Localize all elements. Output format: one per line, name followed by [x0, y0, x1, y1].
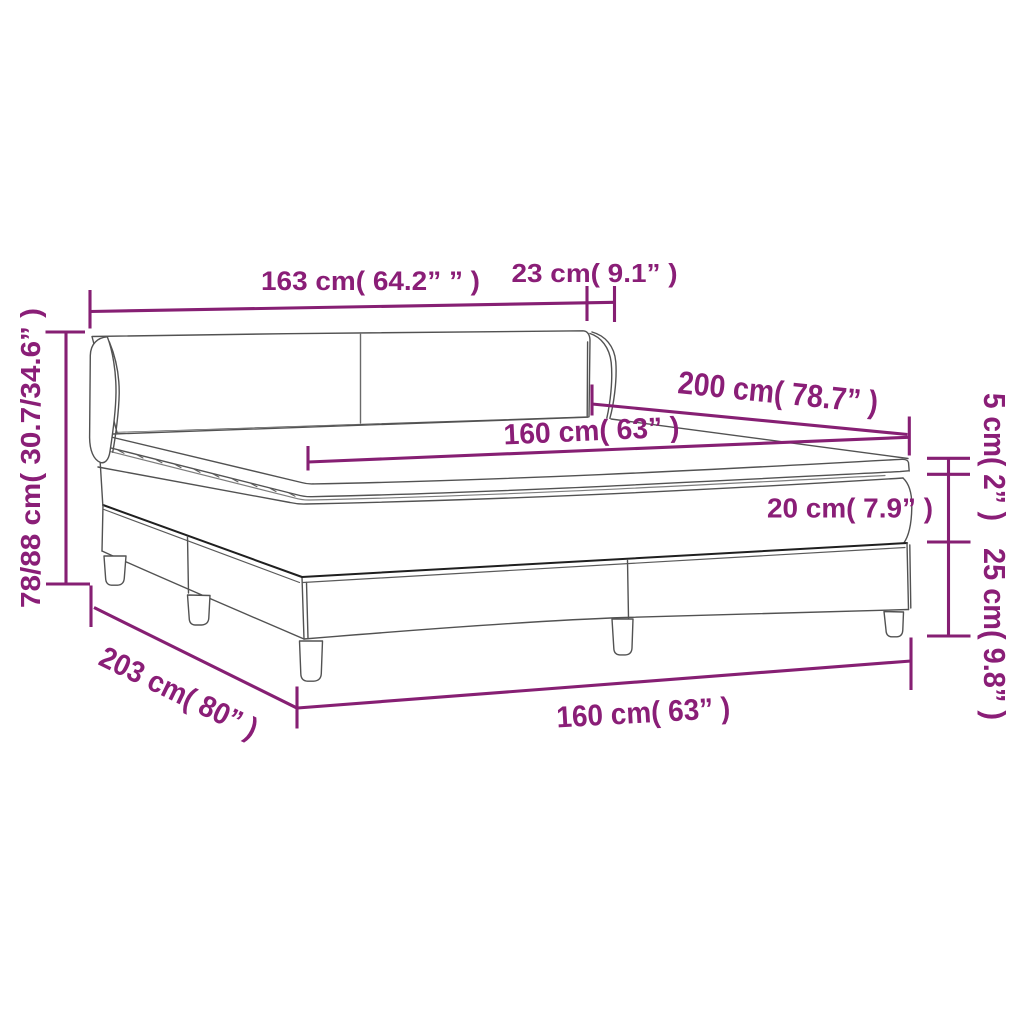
svg-text:23 cm( 9.1” ): 23 cm( 9.1” )	[512, 258, 678, 288]
svg-text:25 cm( 9.8” ): 25 cm( 9.8” )	[977, 548, 1012, 720]
svg-text:20 cm( 7.9” ): 20 cm( 7.9” )	[767, 493, 933, 524]
svg-text:5 cm( 2” ): 5 cm( 2” )	[977, 393, 1012, 521]
svg-text:163 cm( 64.2” ” ): 163 cm( 64.2” ” )	[261, 266, 480, 296]
svg-text:78/88 cm( 30.7/34.6” ): 78/88 cm( 30.7/34.6” )	[15, 308, 46, 608]
